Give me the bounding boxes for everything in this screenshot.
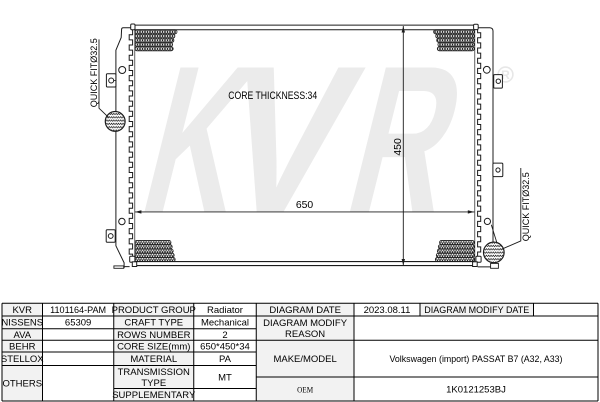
svg-text:450: 450 [393,138,404,156]
svg-text:BEHR: BEHR [9,341,36,352]
svg-text:CORE THICKNESS:34: CORE THICKNESS:34 [228,90,317,102]
svg-text:TRANSMISSION: TRANSMISSION [118,367,190,378]
svg-text:2: 2 [222,330,227,341]
svg-text:650: 650 [296,200,314,211]
svg-text:PRODUCT GROUP: PRODUCT GROUP [112,305,196,316]
svg-text:KVR: KVR [12,305,32,316]
svg-text:OEM: OEM [297,385,313,394]
svg-text:TYPE: TYPE [141,378,166,389]
svg-text:650*450*34: 650*450*34 [200,341,250,352]
svg-text:REASON: REASON [285,329,325,340]
svg-text:MT: MT [218,372,232,383]
svg-text:NISSENS: NISSENS [1,318,43,329]
svg-text:SUPPLEMENTARY: SUPPLEMENTARY [112,390,196,401]
svg-text:PA: PA [219,354,232,365]
svg-text:1101164-PAM: 1101164-PAM [50,305,106,316]
svg-text:1K0121253BJ: 1K0121253BJ [446,384,506,395]
svg-text:Volkswagen (import) PASSAT B7: Volkswagen (import) PASSAT B7 (A32, A33) [390,354,563,365]
svg-text:AVA: AVA [13,330,31,341]
svg-text:STELLOX: STELLOX [1,354,44,365]
svg-text:ROWS NUMBER: ROWS NUMBER [117,330,191,341]
svg-text:QUICK FITØ32.5: QUICK FITØ32.5 [521,172,531,241]
svg-text:OTHERS: OTHERS [2,379,42,390]
svg-text:MAKE/MODEL: MAKE/MODEL [273,354,336,365]
svg-text:QUICK FITØ32.5: QUICK FITØ32.5 [89,38,99,107]
svg-text:Radiator: Radiator [207,305,243,316]
svg-text:CORE SIZE(mm): CORE SIZE(mm) [117,341,190,352]
svg-text:DIAGRAM MODIFY DATE: DIAGRAM MODIFY DATE [424,305,529,316]
svg-text:DIAGRAM MODIFY: DIAGRAM MODIFY [263,318,348,329]
svg-text:CRAFT TYPE: CRAFT TYPE [124,318,183,329]
svg-text:MATERIAL: MATERIAL [130,354,177,365]
svg-text:2023.08.11: 2023.08.11 [364,305,411,316]
svg-text:DIAGRAM DATE: DIAGRAM DATE [269,305,341,316]
svg-text:Mechanical: Mechanical [201,318,249,329]
svg-text:65309: 65309 [65,318,91,329]
